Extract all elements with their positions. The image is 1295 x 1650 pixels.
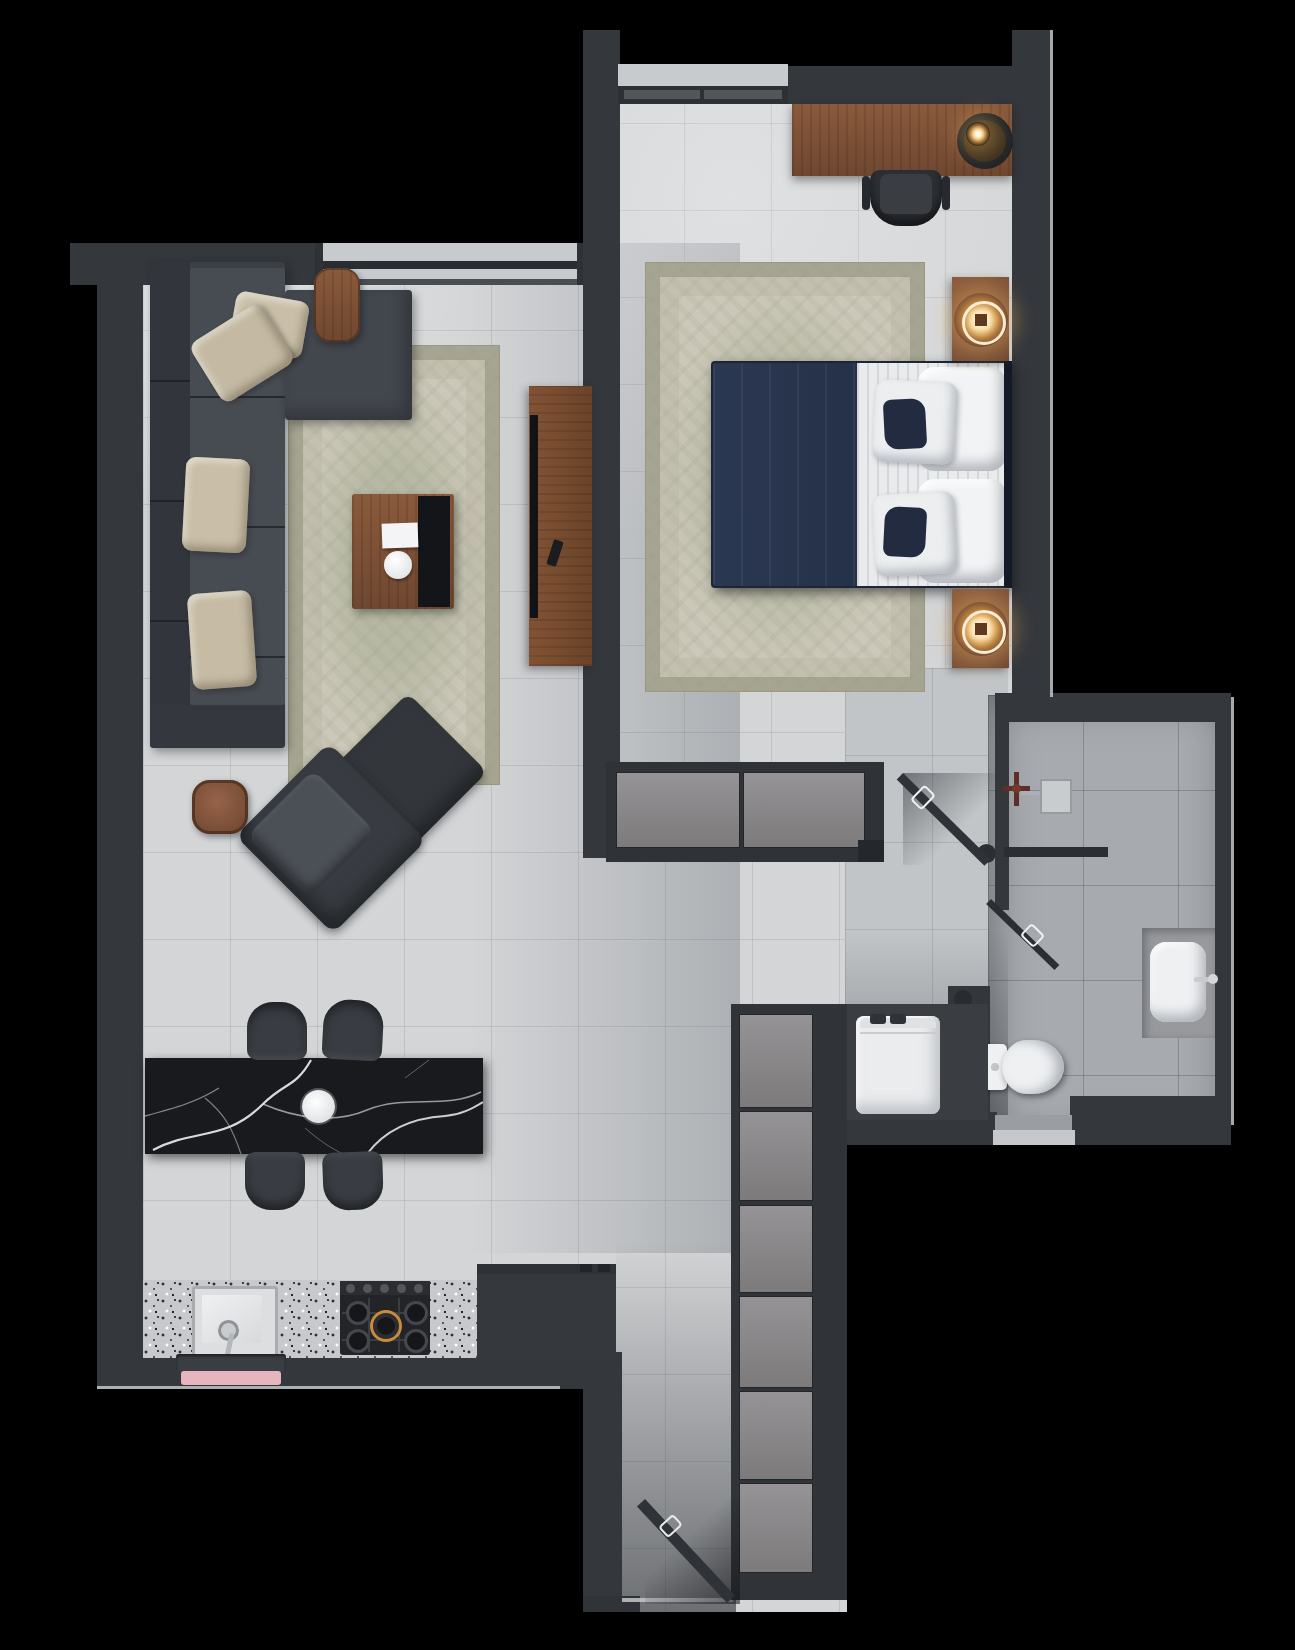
- outside-right: [1231, 697, 1295, 1145]
- wall-bathroom-bottom: [1070, 1096, 1231, 1145]
- burner-1: [346, 1301, 370, 1325]
- wardrobe-door-right: [743, 772, 865, 848]
- washer-nub-2: [890, 1014, 906, 1024]
- outside-above-stub: [585, 0, 620, 30]
- burner-center: [370, 1310, 402, 1342]
- floor-plan: [0, 0, 1295, 1650]
- cabinet-panel-5: [739, 1391, 813, 1480]
- lamp-square-top: [975, 314, 987, 326]
- dining-chair-2: [321, 998, 384, 1061]
- cabinet-panel-4: [739, 1296, 813, 1388]
- tv-console: [529, 386, 592, 666]
- outside-bottom: [583, 1612, 1295, 1650]
- wall-bathroom-right: [1215, 718, 1231, 1125]
- bath-threshold-lower: [993, 1130, 1075, 1145]
- dining-chair-4: [322, 1151, 384, 1211]
- outside-bottom-left: [97, 1389, 583, 1650]
- lamp-square-bottom: [975, 623, 987, 635]
- marble-island: [145, 1058, 483, 1154]
- bed-headboard: [1004, 361, 1012, 588]
- sofa-armrest-bottom: [150, 705, 285, 748]
- toilet-button: [991, 1063, 999, 1071]
- burner-3: [346, 1329, 370, 1353]
- kitchen-sink: [192, 1286, 278, 1358]
- serving-plate: [302, 1090, 335, 1123]
- sofa-pillow-4: [187, 590, 258, 690]
- shower-head: [1040, 779, 1072, 814]
- gas-cooktop: [340, 1281, 430, 1355]
- cabinet-panel-3: [739, 1205, 813, 1293]
- accent-pillow-top: [883, 398, 928, 450]
- cabinet-panel-2: [739, 1111, 813, 1201]
- desk-chair-seat: [880, 174, 932, 214]
- wall-bedroom-top: [788, 66, 1012, 104]
- outside-above-pillar: [1012, 0, 1295, 30]
- shower-valve-knob: [1012, 784, 1021, 793]
- wall-bathroom-left: [995, 718, 1009, 910]
- wardrobe-door-left: [616, 772, 740, 848]
- refrigerator-nub-2: [598, 1264, 610, 1272]
- dining-chair-3: [245, 1152, 305, 1210]
- wall-bedroom-right: [1012, 30, 1050, 705]
- edge-bedroom-right: [1050, 30, 1053, 697]
- bedroom-window-slit-left: [624, 90, 700, 99]
- glass-partition: [1004, 847, 1108, 857]
- outside-bottom-right: [847, 1145, 1295, 1612]
- wall-hall-left: [583, 1352, 622, 1612]
- dining-chair-1: [247, 1002, 307, 1060]
- cooktop-knob-2: [363, 1284, 372, 1293]
- dark-mat: [176, 1354, 286, 1372]
- bedroom-window-slit-right: [704, 90, 782, 99]
- desk-chair: [870, 170, 942, 226]
- living-window-glass: [322, 261, 578, 269]
- edge-bathroom-right: [1231, 697, 1234, 1125]
- edge-bottom-wall: [97, 1386, 560, 1389]
- outside-top-left: [0, 0, 585, 243]
- pink-mat: [181, 1371, 281, 1385]
- washing-machine: [856, 1016, 940, 1114]
- desk-chair-arm-right: [942, 176, 950, 210]
- cooktop-knob-5: [414, 1284, 423, 1293]
- cooktop-knob-1: [346, 1284, 355, 1293]
- storage-cabinet-column: [731, 1004, 847, 1600]
- refrigerator: [477, 1264, 616, 1358]
- refrigerator-nub-1: [580, 1264, 592, 1272]
- window-side-table: [314, 268, 360, 342]
- refrigerator-top-band: [477, 1264, 616, 1274]
- round-side-table: [192, 780, 248, 834]
- toilet-bowl: [1002, 1040, 1064, 1094]
- wall-bathroom-top: [995, 693, 1231, 722]
- cooktop-knob-4: [397, 1284, 406, 1293]
- cabinet-panel-1: [739, 1014, 813, 1108]
- bed-duvet: [713, 363, 863, 586]
- wardrobe: [606, 762, 884, 862]
- wardrobe-end-cap: [858, 840, 884, 862]
- desk-chair-arm-left: [862, 176, 870, 210]
- sofa-pillow-3: [182, 456, 251, 553]
- nightstand-lamp-bottom: [954, 602, 1008, 656]
- accent-pillow-bottom: [883, 506, 928, 558]
- vessel-sink: [1150, 942, 1206, 1022]
- bedroom-window: [618, 64, 788, 104]
- desk-lamp: [957, 113, 1013, 169]
- coffee-table-tray: [418, 496, 450, 607]
- washer-seam: [860, 1032, 936, 1034]
- outside-above-bedroom: [620, 0, 1012, 68]
- outside-top-right: [1053, 30, 1295, 697]
- wall-left: [97, 243, 143, 1389]
- cooktop-knob-3: [380, 1284, 389, 1293]
- vanity-faucet-knob: [1208, 974, 1218, 984]
- coffee-table-cup: [384, 551, 412, 579]
- burner-4: [404, 1329, 428, 1353]
- coffee-table-notebook: [382, 522, 419, 548]
- outside-left: [0, 243, 97, 1650]
- cabinet-panel-6: [739, 1483, 813, 1573]
- nightstand-lamp-top: [954, 293, 1008, 347]
- bath-threshold-upper: [995, 1115, 1072, 1130]
- television: [530, 415, 538, 618]
- washer-nub-1: [870, 1014, 886, 1024]
- desk-lamp-glow: [966, 122, 990, 146]
- burner-2: [404, 1301, 428, 1325]
